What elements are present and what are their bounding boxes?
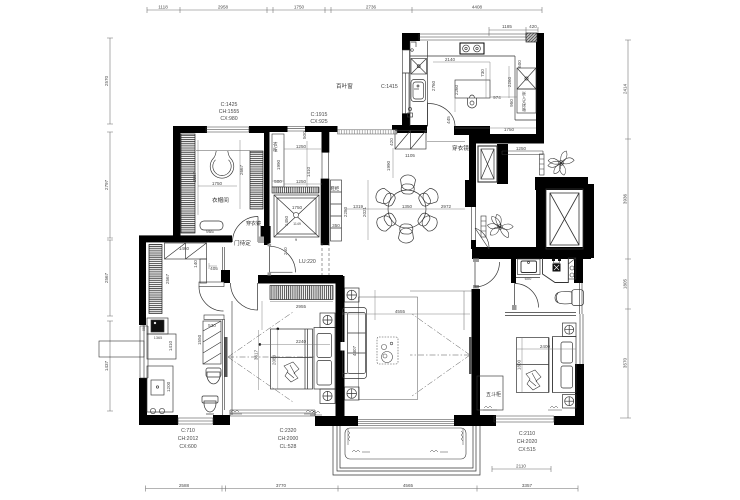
svg-text:3770: 3770 [276, 483, 287, 488]
svg-text:950: 950 [509, 99, 514, 107]
svg-text:240: 240 [283, 247, 288, 255]
svg-text:2088: 2088 [272, 354, 277, 365]
svg-text:1410: 1410 [168, 340, 173, 351]
svg-text:CH:2000: CH:2000 [278, 436, 299, 442]
svg-text:柜: 柜 [273, 147, 278, 154]
svg-text:C:1425: C:1425 [221, 102, 238, 108]
svg-text:1750: 1750 [294, 5, 305, 10]
svg-text:CH:1555: CH:1555 [219, 109, 240, 115]
svg-text:600: 600 [517, 60, 522, 68]
svg-text:百叶窗: 百叶窗 [336, 82, 353, 90]
svg-text:2260: 2260 [454, 84, 459, 95]
svg-text:730: 730 [480, 69, 485, 77]
svg-text:2110: 2110 [516, 464, 526, 469]
svg-text:2567: 2567 [104, 272, 109, 283]
svg-text:嵌入式烤箱: 嵌入式烤箱 [522, 91, 526, 112]
svg-text:C:710: C:710 [181, 428, 195, 434]
svg-text:950: 950 [142, 325, 146, 331]
svg-text:1105: 1105 [405, 153, 415, 158]
svg-text:2140: 2140 [445, 57, 456, 62]
svg-text:1250: 1250 [296, 144, 307, 149]
svg-text:1990: 1990 [276, 159, 281, 170]
svg-text:1750: 1750 [504, 127, 515, 132]
svg-text:CX:600: CX:600 [179, 444, 196, 450]
svg-text:3617: 3617 [254, 349, 259, 360]
svg-text:1250: 1250 [516, 146, 527, 151]
svg-text:2400: 2400 [540, 344, 551, 349]
svg-text:2958: 2958 [218, 5, 229, 10]
svg-text:600: 600 [525, 276, 532, 281]
svg-text:1350: 1350 [402, 204, 413, 209]
svg-text:LU:220: LU:220 [299, 259, 316, 265]
svg-text:974: 974 [493, 95, 501, 100]
svg-text:1185: 1185 [502, 24, 512, 29]
svg-text:3357: 3357 [522, 483, 533, 488]
svg-text:500: 500 [274, 179, 282, 184]
svg-text:1750: 1750 [292, 205, 303, 210]
svg-text:穿衣镜: 穿衣镜 [452, 144, 469, 152]
svg-text:3936: 3936 [623, 193, 628, 204]
svg-text:门待定: 门待定 [234, 239, 251, 247]
svg-text:鞋柜: 鞋柜 [331, 185, 340, 192]
svg-text:1800: 1800 [517, 359, 522, 370]
svg-text:2260: 2260 [507, 76, 512, 87]
svg-text:4307: 4307 [352, 345, 357, 356]
svg-text:3570: 3570 [623, 357, 628, 368]
svg-text:2955: 2955 [296, 304, 307, 309]
svg-text:445: 445 [446, 116, 451, 124]
svg-text:1805: 1805 [623, 278, 628, 289]
svg-text:衣帽间: 衣帽间 [212, 196, 229, 204]
svg-text:1200: 1200 [166, 381, 171, 392]
svg-text:1990: 1990 [386, 160, 391, 171]
svg-text:350: 350 [332, 223, 340, 228]
svg-text:CX:515: CX:515 [518, 447, 535, 453]
svg-text:C:1915: C:1915 [311, 112, 328, 118]
svg-text:CH:2012: CH:2012 [178, 436, 199, 442]
svg-text:4565: 4565 [403, 483, 414, 488]
svg-text:CX:980: CX:980 [220, 116, 237, 122]
svg-text:2736: 2736 [366, 5, 377, 10]
svg-text:穿衣镜: 穿衣镜 [246, 220, 261, 227]
svg-text:1149: 1149 [293, 222, 301, 226]
svg-text:C:1415: C:1415 [381, 84, 398, 90]
svg-text:420: 420 [389, 138, 394, 146]
svg-text:1250: 1250 [296, 179, 307, 184]
svg-text:2567: 2567 [165, 273, 170, 284]
svg-text:1437: 1437 [104, 360, 109, 371]
svg-text:500: 500 [302, 131, 307, 139]
svg-text:CL:528: CL:528 [280, 444, 297, 450]
svg-text:1365: 1365 [154, 336, 162, 340]
svg-text:1118: 1118 [158, 5, 168, 10]
svg-text:2021: 2021 [362, 206, 367, 217]
svg-text:CX:925: CX:925 [310, 119, 327, 125]
svg-text:2588: 2588 [179, 483, 190, 488]
svg-text:2280: 2280 [343, 206, 348, 217]
svg-text:C:2110: C:2110 [519, 431, 535, 437]
svg-text:2570: 2570 [104, 75, 109, 86]
svg-text:2414: 2414 [623, 83, 628, 94]
svg-text:1450: 1450 [284, 215, 289, 226]
svg-text:CH:2020: CH:2020 [517, 439, 538, 445]
svg-text:1550: 1550 [197, 334, 202, 345]
svg-text:2760: 2760 [431, 80, 436, 91]
svg-text:C:2320: C:2320 [280, 428, 297, 434]
svg-text:2667: 2667 [239, 164, 244, 175]
svg-text:530: 530 [208, 323, 216, 328]
svg-text:2240: 2240 [296, 339, 307, 344]
svg-text:4555: 4555 [395, 309, 406, 314]
svg-text:405: 405 [210, 266, 218, 271]
svg-text:4408: 4408 [472, 5, 483, 10]
svg-text:五斗柜: 五斗柜 [486, 391, 501, 398]
svg-text:1750: 1750 [212, 181, 223, 186]
svg-text:420: 420 [529, 24, 537, 29]
svg-text:140: 140 [193, 260, 198, 268]
svg-text:955: 955 [206, 229, 214, 234]
svg-text:2797: 2797 [104, 179, 109, 190]
svg-text:1410: 1410 [306, 166, 311, 177]
svg-text:2567: 2567 [192, 171, 197, 182]
svg-text:2972: 2972 [441, 204, 452, 209]
svg-text:1460: 1460 [179, 246, 190, 251]
